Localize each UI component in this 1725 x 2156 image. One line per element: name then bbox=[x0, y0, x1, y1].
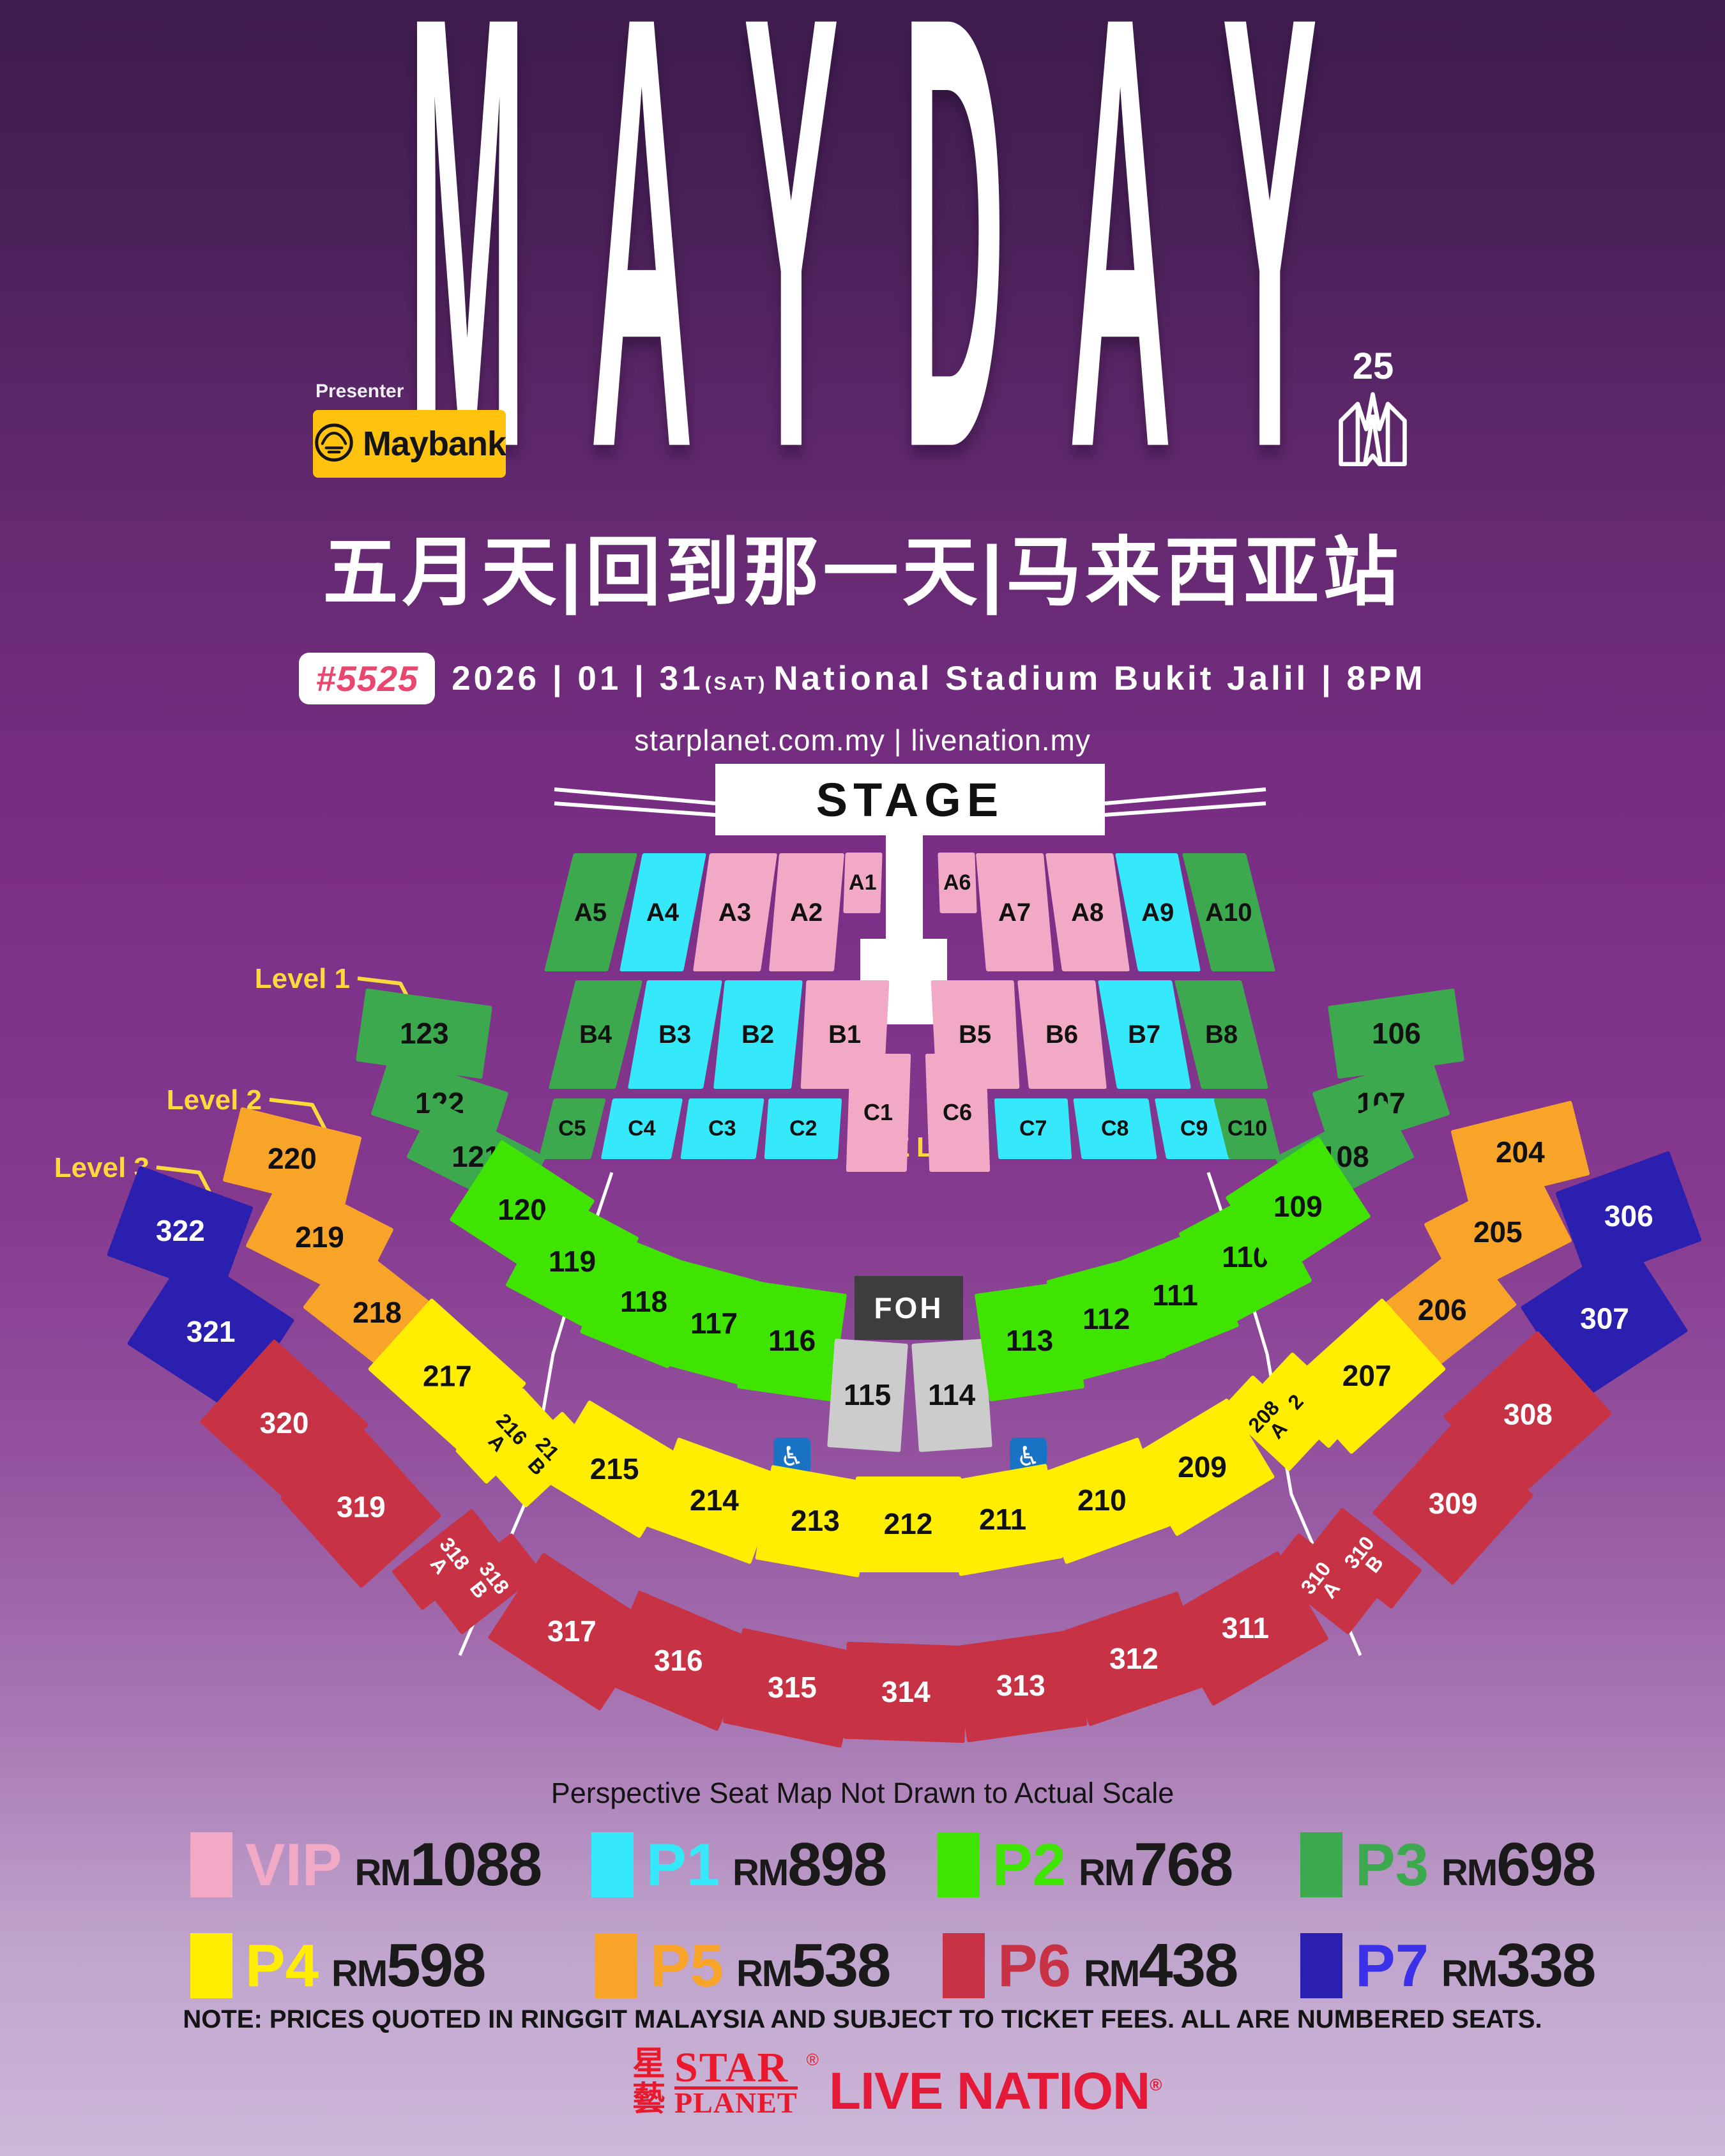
live-nation-logo: LIVE NATION® bbox=[829, 2061, 1161, 2122]
legend-code: P7 bbox=[1355, 1936, 1429, 1996]
legend-code: P4 bbox=[245, 1936, 319, 1996]
legend-swatch-P6 bbox=[943, 1933, 985, 1998]
legend-swatch-P2 bbox=[938, 1832, 980, 1897]
registered-mark: ® bbox=[807, 2050, 819, 2070]
star-planet-top-text: STAR bbox=[674, 2049, 798, 2090]
legend-item-P2: P2RM768 bbox=[938, 1828, 1232, 1902]
star-planet-wordmark: STAR PLANET bbox=[674, 2049, 798, 2116]
legend-swatch-P1 bbox=[591, 1832, 634, 1897]
legend-item-VIP: VIPRM1088 bbox=[190, 1828, 541, 1902]
legend-price: RM698 bbox=[1441, 1830, 1595, 1900]
legend-price: RM338 bbox=[1441, 1931, 1595, 2001]
star-planet-bottom-text: PLANET bbox=[674, 2090, 798, 2116]
legend-code: VIP bbox=[245, 1835, 342, 1895]
legend-price: RM538 bbox=[736, 1931, 890, 2001]
legend-swatch-P4 bbox=[190, 1933, 232, 1998]
legend-price: RM438 bbox=[1084, 1931, 1237, 2001]
legend-item-P4: P4RM598 bbox=[190, 1929, 485, 2003]
star-planet-cn-top: 星 bbox=[632, 2047, 665, 2083]
star-planet-chinese: 星 藝 bbox=[632, 2047, 665, 2117]
price-note: NOTE: PRICES QUOTED IN RINGGIT MALAYSIA … bbox=[0, 2005, 1725, 2034]
legend-code: P5 bbox=[650, 1936, 724, 1996]
legend-item-P7: P7RM338 bbox=[1300, 1929, 1595, 2003]
price-legend: VIPRM1088P1RM898P2RM768P3RM698P4RM598P5R… bbox=[0, 0, 1725, 2156]
legend-swatch-P3 bbox=[1300, 1832, 1342, 1897]
legend-code: P1 bbox=[646, 1835, 720, 1895]
legend-price: RM598 bbox=[331, 1931, 485, 2001]
live-nation-wordmark: LIVE NATION bbox=[829, 2062, 1150, 2120]
legend-price: RM898 bbox=[733, 1830, 886, 1900]
star-planet-logo: 星 藝 STAR PLANET ® bbox=[632, 2047, 819, 2117]
legend-item-P3: P3RM698 bbox=[1300, 1828, 1595, 1902]
legend-swatch-VIP bbox=[190, 1832, 232, 1897]
legend-price: RM768 bbox=[1079, 1830, 1232, 1900]
legend-code: P6 bbox=[998, 1936, 1071, 1996]
legend-price: RM1088 bbox=[355, 1830, 542, 1900]
registered-mark: ® bbox=[1150, 2076, 1161, 2095]
legend-item-P6: P6RM438 bbox=[943, 1929, 1237, 2003]
legend-swatch-P7 bbox=[1300, 1933, 1342, 1998]
star-planet-cn-bottom: 藝 bbox=[632, 2083, 665, 2118]
legend-code: P3 bbox=[1355, 1835, 1429, 1895]
legend-code: P2 bbox=[992, 1835, 1066, 1895]
legend-item-P5: P5RM538 bbox=[595, 1929, 890, 2003]
legend-swatch-P5 bbox=[595, 1933, 637, 1998]
legend-item-P1: P1RM898 bbox=[591, 1828, 886, 1902]
